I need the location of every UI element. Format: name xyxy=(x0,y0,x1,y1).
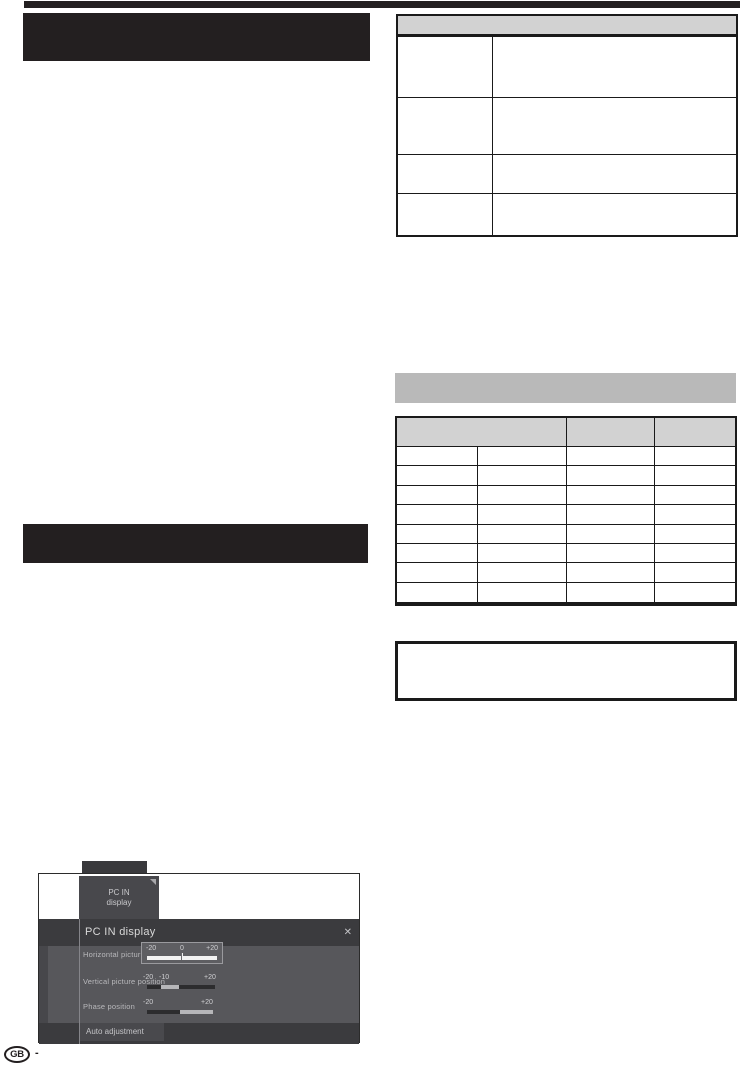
table-cell xyxy=(655,525,735,543)
note-box xyxy=(395,641,737,701)
table-cell xyxy=(398,194,493,235)
table-cell xyxy=(397,563,478,581)
osd-screenshot: PC IN display PC IN display ✕ Horizontal… xyxy=(38,873,360,1043)
section-header-bar-gray xyxy=(395,373,736,403)
mid-right-table xyxy=(395,416,737,606)
table-cell xyxy=(397,583,478,602)
osd-tab-pc-in-display: PC IN display xyxy=(79,876,159,919)
table-cell xyxy=(478,466,567,484)
table-cell xyxy=(478,544,567,562)
table-cell xyxy=(397,505,478,523)
table-row xyxy=(397,583,735,602)
table-row xyxy=(397,544,735,563)
scale-min: -20 xyxy=(146,945,156,952)
table-cell xyxy=(655,563,735,581)
osd-content-divider xyxy=(79,919,80,1044)
table-cell xyxy=(478,447,567,465)
table-cell xyxy=(493,194,736,235)
manual-page: PC IN display PC IN display ✕ Horizontal… xyxy=(0,0,740,1067)
table-row xyxy=(397,447,735,466)
table-cell xyxy=(655,583,735,602)
table-cell xyxy=(478,563,567,581)
osd-tab-label-line1: PC IN xyxy=(79,888,159,898)
osd-cropped-element xyxy=(82,861,147,873)
table-cell xyxy=(567,486,655,504)
table-cell xyxy=(655,505,735,523)
table-header-row xyxy=(397,418,735,447)
table-cell xyxy=(655,486,735,504)
section-header-block-top-left xyxy=(23,13,370,61)
top-right-table xyxy=(396,14,738,237)
scale-min: -20 xyxy=(143,974,153,981)
table-cell xyxy=(567,583,655,602)
slider-handle xyxy=(161,985,179,989)
scale-mid: 0 xyxy=(180,945,184,952)
table-cell xyxy=(493,155,736,193)
table-cell xyxy=(478,505,567,523)
table-cell xyxy=(655,466,735,484)
scale-max: +20 xyxy=(201,999,213,1006)
slider-track-filled xyxy=(147,1010,180,1014)
corner-arrow-icon xyxy=(150,879,156,885)
osd-tab-label-line2: display xyxy=(79,898,159,908)
table-cell xyxy=(397,525,478,543)
footer-region-badge: GB xyxy=(4,1046,30,1063)
slider-horizontal-selected: -20 0 +20 xyxy=(141,942,223,964)
table-cell xyxy=(493,98,736,154)
table-cell xyxy=(567,544,655,562)
table-header-cell xyxy=(567,418,655,446)
table-header-cell xyxy=(655,418,735,446)
table-cell xyxy=(567,505,655,523)
osd-bottom-bar: Auto adjustment xyxy=(39,1023,359,1044)
table-row xyxy=(397,466,735,485)
table-row xyxy=(398,193,736,235)
table-cell xyxy=(567,466,655,484)
close-icon: ✕ xyxy=(344,927,352,938)
scale-max: +20 xyxy=(206,945,218,952)
table-cell xyxy=(655,447,735,465)
slider-label-phase: Phase position xyxy=(83,1002,135,1011)
table-header-cell xyxy=(397,418,567,446)
table-cell xyxy=(567,563,655,581)
table-cell xyxy=(567,525,655,543)
section-header-block-mid-left xyxy=(23,524,368,563)
osd-dialog-title: PC IN display xyxy=(85,926,156,938)
table-cell xyxy=(478,486,567,504)
table-row xyxy=(397,486,735,505)
scale-min: -20 xyxy=(143,999,153,1006)
slider-track xyxy=(147,985,215,989)
table-cell xyxy=(398,155,493,193)
table-cell xyxy=(655,544,735,562)
scale-current: -10 xyxy=(159,974,169,981)
scale-max: +20 xyxy=(204,974,216,981)
slider-handle xyxy=(181,953,183,960)
table-cell xyxy=(398,37,493,97)
table-cell xyxy=(397,544,478,562)
table-cell xyxy=(567,447,655,465)
table-row xyxy=(398,36,736,97)
table-row xyxy=(398,97,736,154)
table-cell xyxy=(397,486,478,504)
table-cell xyxy=(478,525,567,543)
auto-adjustment-button: Auto adjustment xyxy=(80,1023,164,1041)
table-cell xyxy=(478,583,567,602)
osd-left-strip xyxy=(39,946,48,1023)
table-row xyxy=(397,505,735,524)
table-cell xyxy=(397,447,478,465)
table-header-row xyxy=(398,16,736,36)
top-rule xyxy=(24,1,740,8)
footer-page-separator: - xyxy=(35,1047,39,1059)
osd-dialog-body: Horizontal picture position -20 0 +20 Ve… xyxy=(39,946,359,1023)
table-row xyxy=(397,525,735,544)
table-cell xyxy=(398,98,493,154)
table-cell xyxy=(397,466,478,484)
table-row xyxy=(398,154,736,193)
table-cell xyxy=(493,37,736,97)
table-row xyxy=(397,563,735,582)
slider-track-rest xyxy=(180,1010,213,1014)
